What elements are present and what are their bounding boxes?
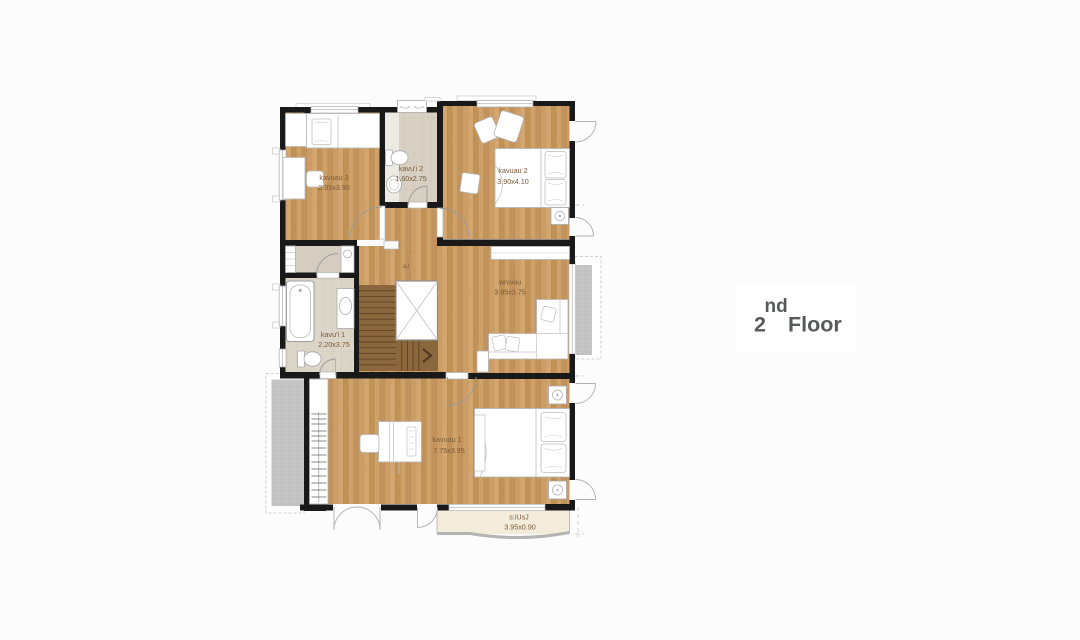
svg-text:2.20x3.75: 2.20x3.75: [318, 340, 350, 349]
svg-text:kavuau 3: kavuau 3: [319, 173, 348, 182]
svg-text:kavu'i 2: kavu'i 2: [399, 164, 423, 173]
svg-text:7.75x3.95: 7.75x3.95: [433, 446, 465, 455]
svg-text:2.95x3.90: 2.95x3.90: [318, 183, 350, 192]
svg-text:3.90x4.10: 3.90x4.10: [497, 177, 529, 186]
svg-text:wnwau: wnwau: [498, 278, 521, 287]
svg-text:1.60x2.75: 1.60x2.75: [395, 174, 427, 183]
svg-text:kavuau 2: kavuau 2: [498, 166, 527, 175]
svg-text:s:iUsJ: s:iUsJ: [509, 513, 529, 522]
svg-text:aJ: aJ: [403, 264, 409, 270]
svg-text:3.95x0.90: 3.95x0.90: [504, 523, 536, 532]
svg-text:Floor: Floor: [788, 313, 842, 337]
svg-text:3.95x3.75: 3.95x3.75: [494, 288, 526, 297]
svg-text:kavu'i 1: kavu'i 1: [321, 330, 345, 339]
svg-text:nd: nd: [765, 296, 788, 317]
svg-text:kavuau 1: kavuau 1: [432, 435, 461, 444]
